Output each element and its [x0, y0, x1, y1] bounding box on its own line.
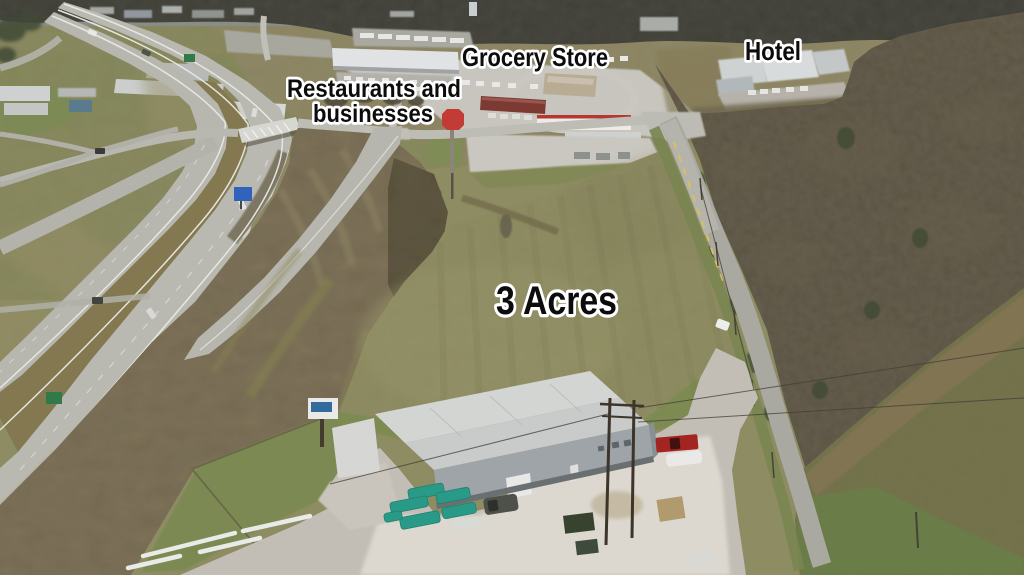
svg-text:3 Acres: 3 Acres [496, 279, 617, 323]
svg-text:Grocery Store: Grocery Store [462, 42, 608, 72]
svg-text:Hotel: Hotel [745, 36, 801, 66]
svg-text:businesses: businesses [313, 100, 433, 128]
svg-text:Restaurants and: Restaurants and [287, 75, 461, 103]
